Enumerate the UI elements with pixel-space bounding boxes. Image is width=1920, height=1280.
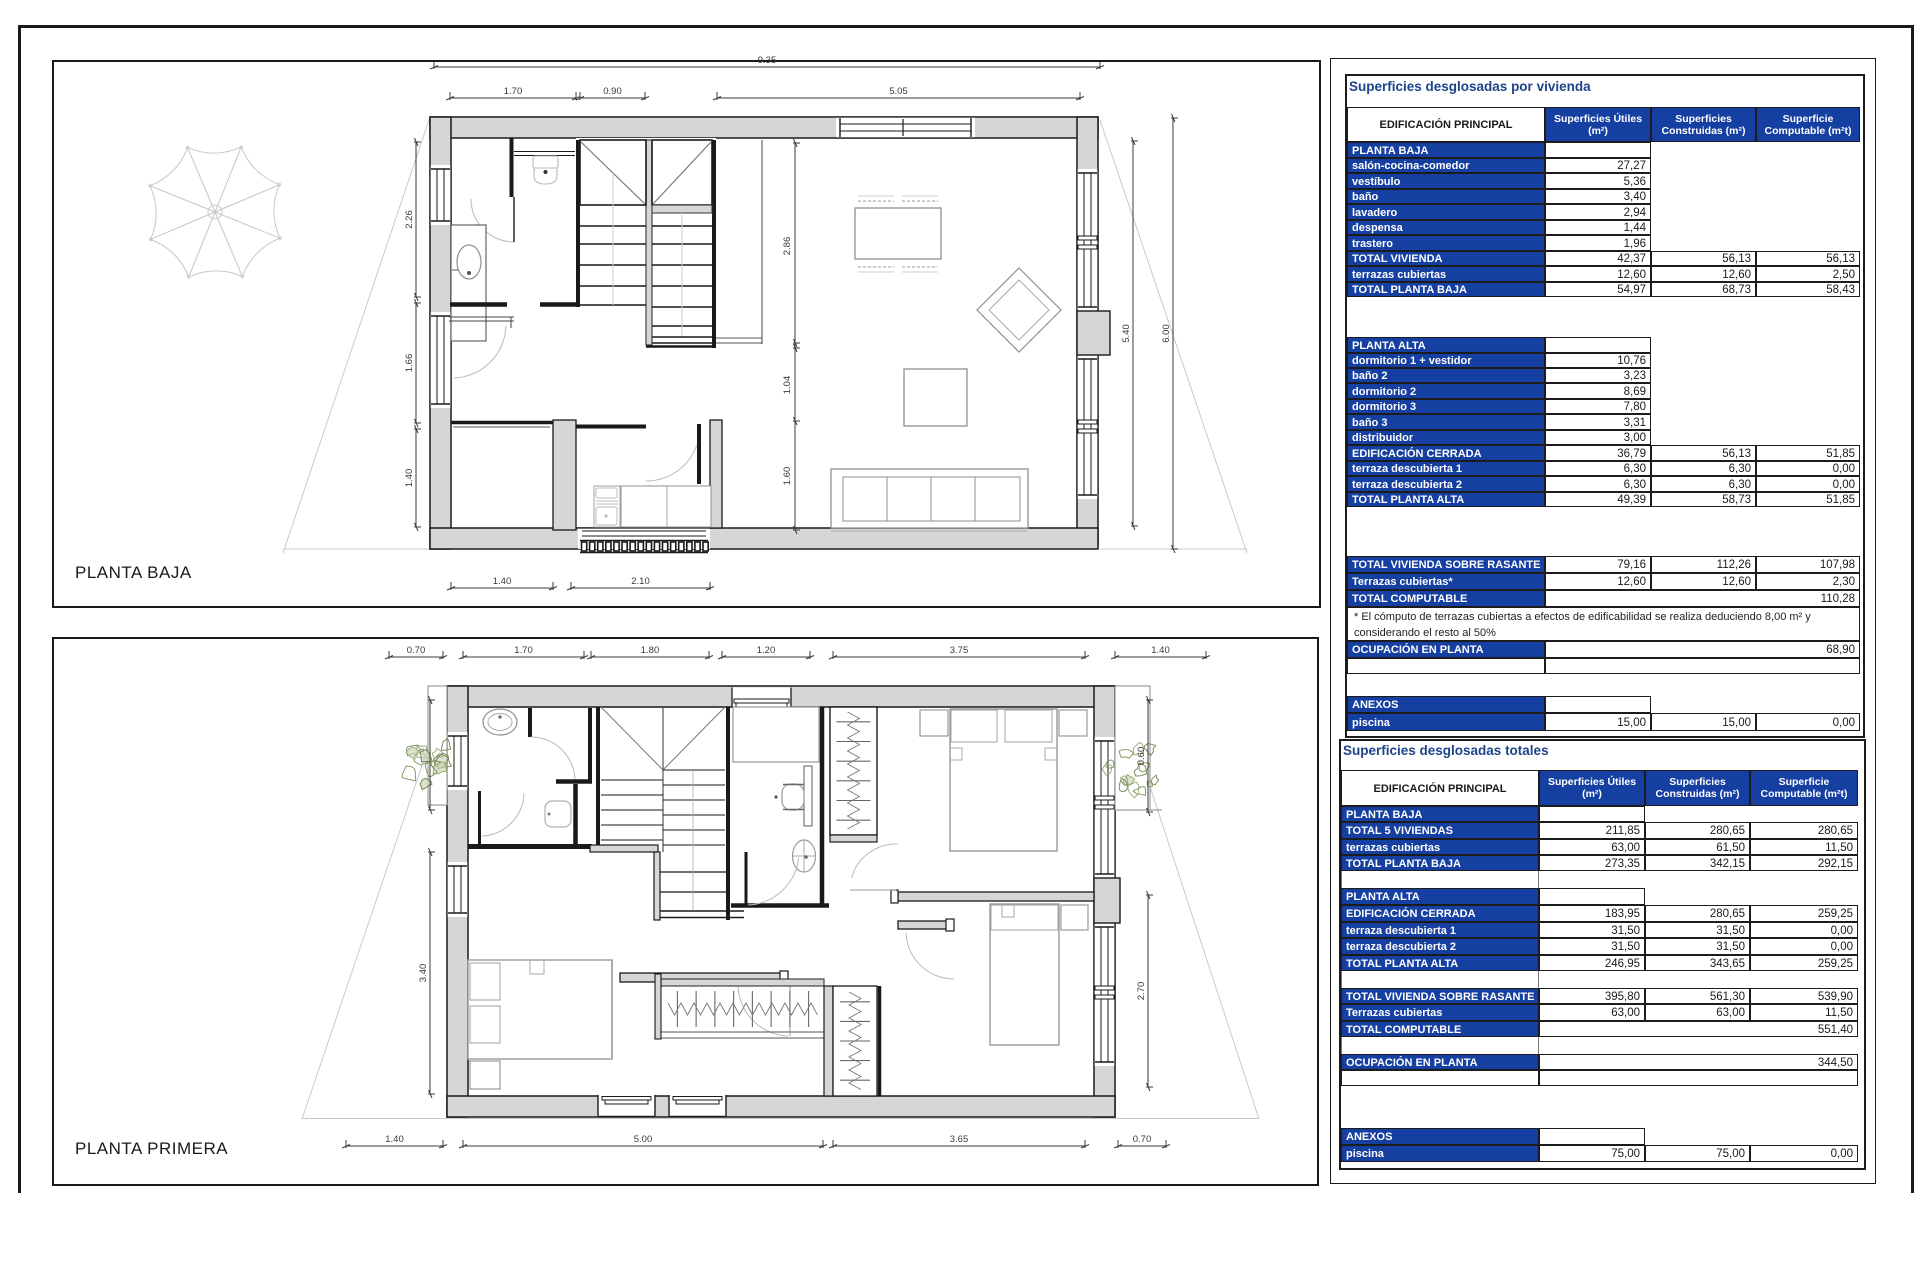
svg-text:2.86: 2.86 xyxy=(782,237,793,256)
svg-text:PLANTA BAJA: PLANTA BAJA xyxy=(75,563,192,582)
svg-text:1.40: 1.40 xyxy=(385,1134,404,1145)
svg-text:5.40: 5.40 xyxy=(1121,324,1132,343)
svg-text:1.04: 1.04 xyxy=(782,376,793,395)
svg-text:1.40: 1.40 xyxy=(404,469,415,488)
svg-text:0.90: 0.90 xyxy=(603,86,622,97)
svg-text:PLANTA PRIMERA: PLANTA PRIMERA xyxy=(75,1139,228,1158)
svg-text:0.60: 0.60 xyxy=(1136,747,1147,766)
svg-text:2.26: 2.26 xyxy=(404,210,415,229)
svg-text:1.66: 1.66 xyxy=(404,354,415,373)
svg-text:1.60: 1.60 xyxy=(782,467,793,486)
svg-text:5.00: 5.00 xyxy=(634,1134,653,1145)
svg-text:6.00: 6.00 xyxy=(1161,324,1172,343)
svg-text:1.40: 1.40 xyxy=(1151,645,1170,656)
svg-text:0.70: 0.70 xyxy=(407,645,426,656)
svg-text:1.40: 1.40 xyxy=(493,576,512,587)
svg-text:9.35: 9.35 xyxy=(758,55,777,66)
svg-text:0.70: 0.70 xyxy=(1133,1134,1152,1145)
svg-text:1.80: 1.80 xyxy=(641,645,660,656)
svg-text:3.75: 3.75 xyxy=(950,645,969,656)
svg-text:1.70: 1.70 xyxy=(514,645,533,656)
svg-text:1.20: 1.20 xyxy=(757,645,776,656)
svg-text:1.70: 1.70 xyxy=(504,86,523,97)
svg-text:3.65: 3.65 xyxy=(950,1134,969,1145)
svg-text:2.10: 2.10 xyxy=(631,576,650,587)
svg-text:2.70: 2.70 xyxy=(1136,982,1147,1001)
svg-text:3.40: 3.40 xyxy=(418,964,429,983)
svg-text:5.05: 5.05 xyxy=(889,86,908,97)
